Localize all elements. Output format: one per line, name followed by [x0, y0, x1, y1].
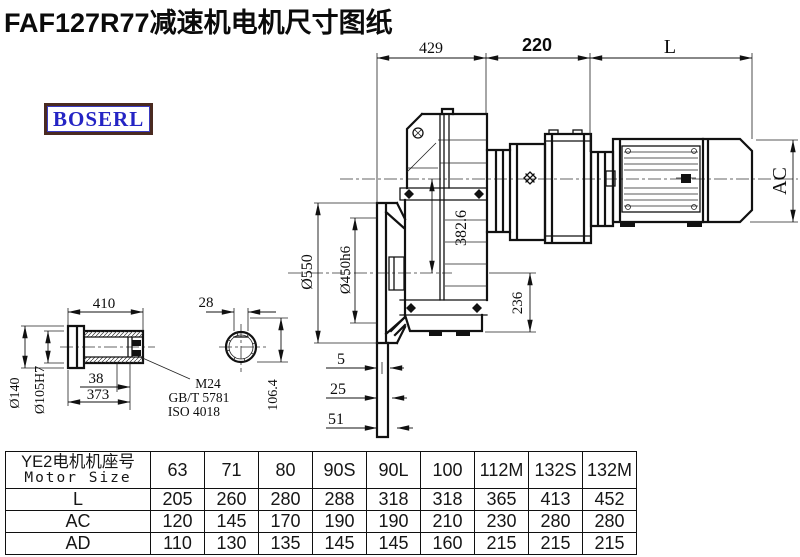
- table-row-L: L 205 260 280 288 318 318 365 413 452: [6, 489, 637, 511]
- cell: 190: [367, 511, 421, 533]
- cell: 110: [151, 533, 205, 555]
- note-iso4018: ISO 4018: [168, 404, 220, 419]
- cell: 365: [475, 489, 529, 511]
- row-label-AC: AC: [6, 511, 151, 533]
- gearbox-housing: [400, 109, 487, 336]
- dim-450h6: Ø450h6: [338, 245, 354, 294]
- cell: 230: [475, 511, 529, 533]
- dim-373: 373: [87, 387, 110, 403]
- col-71: 71: [205, 452, 259, 489]
- col-132S: 132S: [529, 452, 583, 489]
- dim-220: 220: [522, 35, 552, 55]
- centerlines: [60, 179, 798, 372]
- dim-410: 410: [93, 296, 116, 312]
- dim-38: 38: [89, 371, 104, 387]
- cell: 135: [259, 533, 313, 555]
- cell: 452: [583, 489, 637, 511]
- dim-236: 236: [510, 291, 526, 314]
- col-90S: 90S: [313, 452, 367, 489]
- cell: 210: [421, 511, 475, 533]
- col-90L: 90L: [367, 452, 421, 489]
- row-label-AD: AD: [6, 533, 151, 555]
- table-row-AC: AC 120 145 170 190 190 210 230 280 280: [6, 511, 637, 533]
- cell: 215: [583, 533, 637, 555]
- cell: 205: [151, 489, 205, 511]
- brand-logo: BOSERL: [44, 103, 153, 135]
- cell: 318: [421, 489, 475, 511]
- col-112M: 112M: [475, 452, 529, 489]
- header-cn: YE2电机机座号: [6, 454, 150, 471]
- dim-105H7: Ø105H7: [33, 366, 48, 414]
- header-motor-size: YE2电机机座号 Motor Size: [6, 452, 151, 489]
- note-gbt5781: GB/T 5781: [169, 390, 230, 405]
- col-63: 63: [151, 452, 205, 489]
- dim-140: Ø140: [8, 377, 23, 408]
- cell: 130: [205, 533, 259, 555]
- dim-5: 5: [337, 351, 345, 368]
- cell: 145: [313, 533, 367, 555]
- dim-106-4: 106.4: [266, 379, 281, 411]
- dimensions: 429 220 L AC 382.6 236 Ø550 Ø450h6 5 25 …: [8, 35, 798, 428]
- col-132M: 132M: [583, 452, 637, 489]
- cell: 160: [421, 533, 475, 555]
- motor-adapter: [487, 130, 613, 243]
- dim-382-6: 382.6: [453, 210, 470, 246]
- cell: 170: [259, 511, 313, 533]
- table-header-row: YE2电机机座号 Motor Size 63 71 80 90S 90L 100…: [6, 452, 637, 489]
- brand-logo-text: BOSERL: [47, 106, 150, 132]
- cell: 145: [367, 533, 421, 555]
- page-title: FAF127R77减速机电机尺寸图纸: [4, 1, 393, 40]
- page: 429 220 L AC 382.6 236 Ø550 Ø450h6 5 25 …: [0, 0, 800, 557]
- dim-51: 51: [328, 411, 344, 428]
- cell: 280: [259, 489, 313, 511]
- cell: 318: [367, 489, 421, 511]
- dim-550: Ø550: [299, 254, 316, 290]
- dim-28: 28: [199, 295, 214, 311]
- cell: 215: [529, 533, 583, 555]
- header-en: Motor Size: [6, 471, 150, 486]
- row-label-L: L: [6, 489, 151, 511]
- dim-25: 25: [330, 381, 346, 398]
- output-flange: [377, 203, 405, 437]
- cell: 280: [583, 511, 637, 533]
- dim-L: L: [664, 36, 676, 58]
- cell: 190: [313, 511, 367, 533]
- dim-429: 429: [419, 40, 443, 57]
- note-m24: M24: [195, 376, 221, 391]
- cell: 145: [205, 511, 259, 533]
- cell: 260: [205, 489, 259, 511]
- cell: 413: [529, 489, 583, 511]
- cell: 120: [151, 511, 205, 533]
- col-80: 80: [259, 452, 313, 489]
- motor-size-table: YE2电机机座号 Motor Size 63 71 80 90S 90L 100…: [5, 451, 637, 555]
- cell: 215: [475, 533, 529, 555]
- table-row-AD: AD 110 130 135 145 145 160 215 215 215: [6, 533, 637, 555]
- cell: 288: [313, 489, 367, 511]
- motor: [606, 139, 752, 227]
- col-100: 100: [421, 452, 475, 489]
- dim-AC: AC: [769, 167, 791, 195]
- cell: 280: [529, 511, 583, 533]
